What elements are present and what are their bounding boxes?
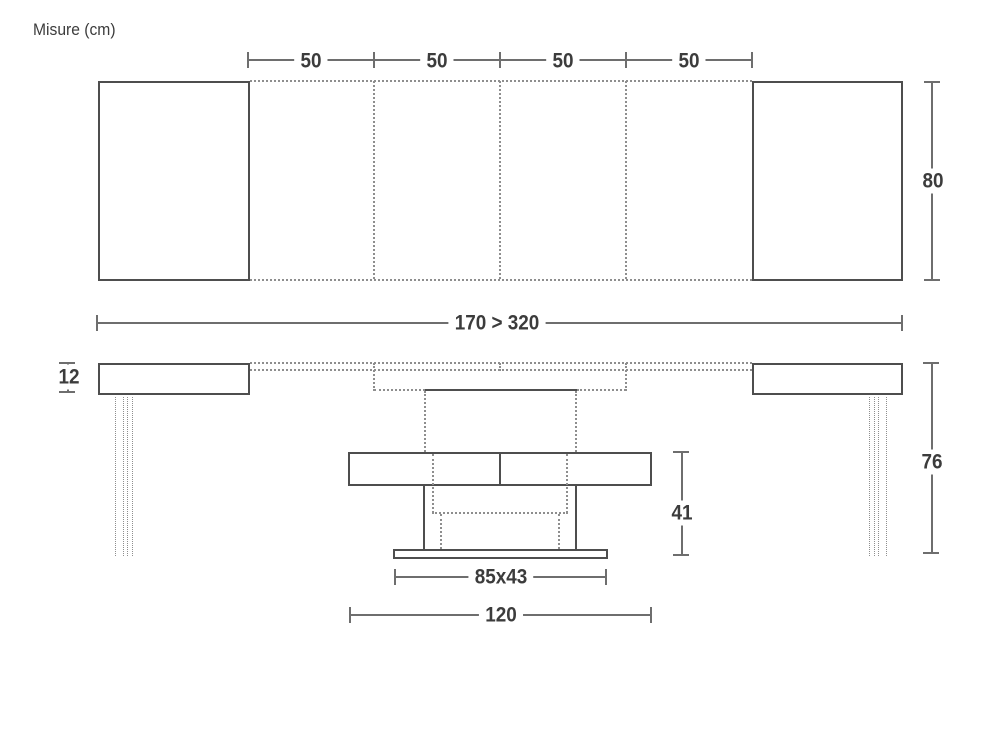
diagram-title: Misure (cm)	[33, 20, 116, 40]
length-dim-tick	[901, 315, 903, 331]
column-inner-dashed-right	[566, 454, 568, 513]
base-plate-dim-tick	[394, 569, 396, 585]
dimension-diagram: Misure (cm) 50 50 50 50 80 170 > 320	[0, 0, 1000, 750]
base-width-label: 120	[479, 603, 523, 628]
extension-bottom-edge-dashed	[250, 279, 752, 281]
leaf-divider-dashed-1	[373, 81, 375, 279]
thickness-dim-tick	[59, 391, 75, 393]
side-leaf-joint-dashed-1	[373, 363, 375, 391]
base-width-dim-tick	[650, 607, 652, 623]
length-label: 170 > 320	[448, 311, 545, 336]
column-left-edge	[423, 486, 425, 549]
leaf-dim-tick	[247, 52, 249, 68]
height-dim-tick	[923, 362, 939, 364]
support-dashed-right	[575, 391, 577, 452]
side-leaf-joint-dashed-2	[499, 363, 501, 371]
side-leaf-joint-dashed-3	[625, 363, 627, 391]
left-leg-dashed	[115, 397, 116, 556]
left-leg-dashed	[127, 397, 128, 556]
side-extension-bottom-dashed	[250, 369, 752, 371]
thickness-label: 12	[56, 365, 82, 390]
leaf-width-label-2: 50	[420, 49, 454, 74]
shelf-dashed-left	[374, 389, 425, 391]
leaf-dim-tick	[625, 52, 627, 68]
pedestal-height-dim-tick	[673, 554, 689, 556]
column-lower-dashed-right	[558, 514, 560, 549]
top-view-left-panel	[98, 81, 250, 281]
leaf-dim-tick	[373, 52, 375, 68]
height-label: 76	[919, 450, 945, 475]
column-inner-dashed-left	[432, 454, 434, 513]
pedestal-height-dim-tick	[673, 451, 689, 453]
leaf-width-label-1: 50	[294, 49, 328, 74]
depth-dim-tick	[924, 279, 940, 281]
height-dim-tick	[923, 552, 939, 554]
right-leg-dashed	[874, 397, 875, 556]
leaf-dim-tick	[751, 52, 753, 68]
pedestal-beam-divider	[499, 454, 501, 484]
left-leg-dashed	[132, 397, 133, 556]
side-extension-top-dashed	[250, 362, 752, 364]
depth-label: 80	[920, 169, 946, 194]
column-right-edge	[575, 486, 577, 549]
left-leg-dashed	[123, 397, 124, 556]
right-leg-dashed	[878, 397, 879, 556]
base-width-dim-tick	[349, 607, 351, 623]
support-dashed-left	[424, 391, 426, 452]
base-plate	[393, 549, 608, 559]
column-lower-dashed-left	[440, 514, 442, 549]
side-view-left-top	[98, 363, 250, 395]
shelf-dashed-right	[577, 389, 626, 391]
leaf-dim-tick	[499, 52, 501, 68]
leaf-width-label-3: 50	[546, 49, 580, 74]
right-leg-dashed	[869, 397, 870, 556]
leaf-width-label-4: 50	[672, 49, 706, 74]
extension-top-edge-dashed	[250, 80, 752, 82]
right-leg-dashed	[886, 397, 887, 556]
leaf-divider-dashed-3	[625, 81, 627, 279]
top-view-right-panel	[752, 81, 903, 281]
pedestal-height-label: 41	[669, 501, 695, 526]
base-plate-label: 85x43	[468, 565, 533, 590]
shelf-line	[425, 389, 577, 391]
base-plate-dim-tick	[605, 569, 607, 585]
depth-dim-tick	[924, 81, 940, 83]
length-dim-tick	[96, 315, 98, 331]
leaf-divider-dashed-2	[499, 81, 501, 279]
column-inner-dashed-shelf	[432, 512, 568, 514]
side-view-right-top	[752, 363, 903, 395]
